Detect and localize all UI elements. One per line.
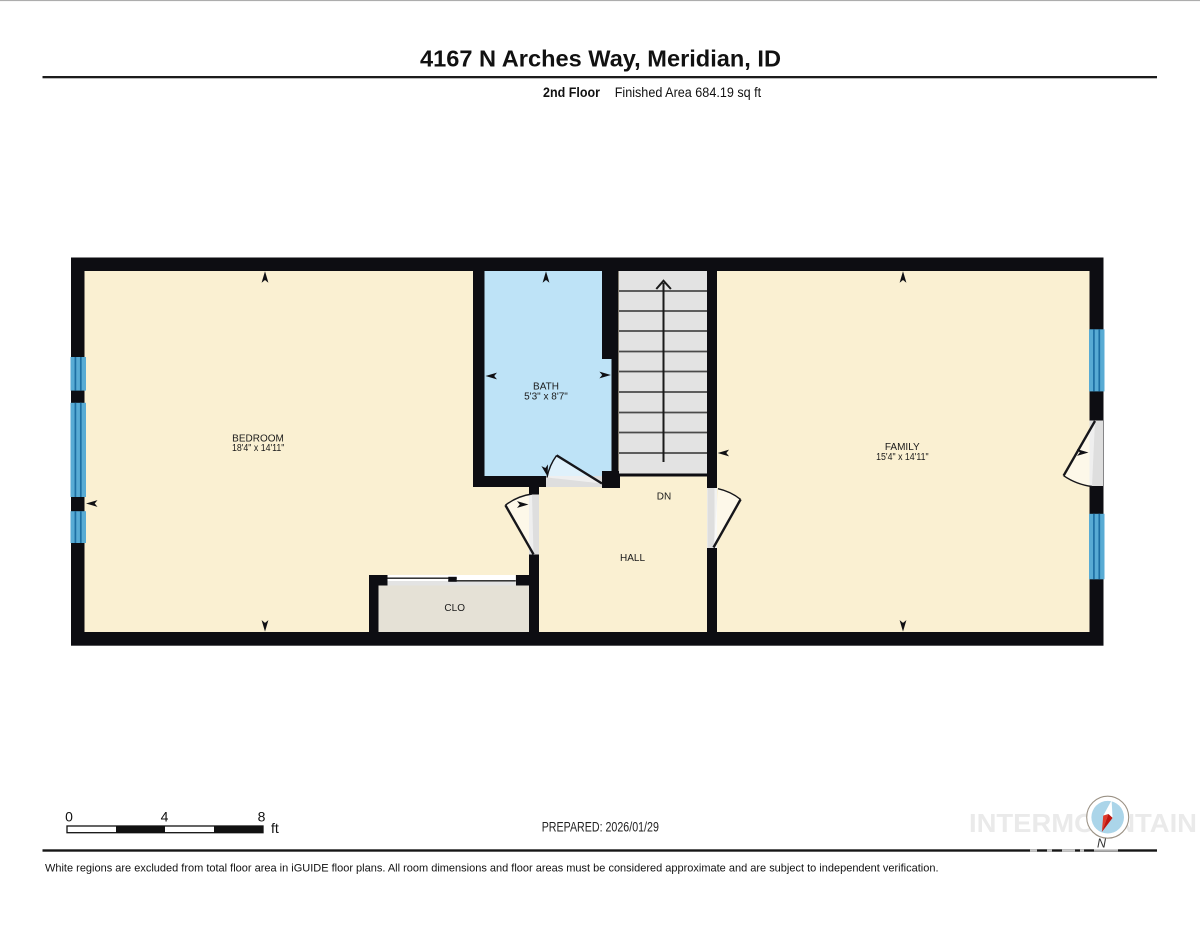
svg-text:15'4" x 14'11": 15'4" x 14'11" xyxy=(876,452,929,463)
svg-text:HALL: HALL xyxy=(620,553,645,564)
svg-text:18'4" x 14'11": 18'4" x 14'11" xyxy=(232,443,285,454)
svg-text:8: 8 xyxy=(258,809,266,825)
svg-text:Finished Area 684.19 sq ft: Finished Area 684.19 sq ft xyxy=(615,85,762,100)
svg-text:N: N xyxy=(1097,837,1107,851)
svg-text:2nd Floor: 2nd Floor xyxy=(543,85,601,100)
svg-text:4: 4 xyxy=(161,809,169,825)
svg-text:CLO: CLO xyxy=(444,603,465,614)
svg-text:White regions are excluded fro: White regions are excluded from total fl… xyxy=(45,863,939,875)
svg-text:PREPARED: 2026/01/29: PREPARED: 2026/01/29 xyxy=(542,819,659,834)
svg-text:DN: DN xyxy=(657,492,671,503)
svg-text:0: 0 xyxy=(65,809,73,825)
svg-text:5'3" x 8'7": 5'3" x 8'7" xyxy=(524,392,568,403)
svg-text:INTERMOUNTAIN: INTERMOUNTAIN xyxy=(969,810,1197,838)
svg-text:ft: ft xyxy=(271,820,279,836)
svg-text:4167 N Arches Way, Meridian, I: 4167 N Arches Way, Meridian, ID xyxy=(420,46,781,72)
